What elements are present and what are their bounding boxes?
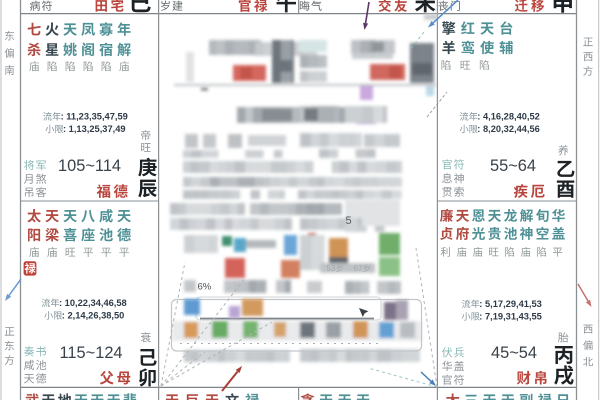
- svg-text:: 11,23,35,47,59: : 11,23,35,47,59: [61, 112, 128, 122]
- svg-text:5: 5: [346, 215, 352, 227]
- svg-text:67: 67: [354, 264, 363, 273]
- svg-text:: 4,16,28,40,52: : 4,16,28,40,52: [477, 112, 540, 122]
- svg-text:45~54: 45~54: [491, 344, 537, 362]
- svg-text:: 1,13,25,37,49: : 1,13,25,37,49: [63, 124, 126, 134]
- svg-text:53: 53: [327, 264, 336, 273]
- svg-text:105~114: 105~114: [58, 157, 121, 175]
- svg-text:: 10,22,34,46,58: : 10,22,34,46,58: [59, 298, 127, 308]
- svg-text:: 2,14,26,38,50: : 2,14,26,38,50: [62, 311, 125, 321]
- svg-text:: 5,17,29,41,53: : 5,17,29,41,53: [479, 299, 542, 309]
- svg-text:55~64: 55~64: [490, 157, 536, 175]
- svg-text:6%: 6%: [198, 282, 212, 293]
- svg-text:: 8,20,32,44,56: : 8,20,32,44,56: [477, 124, 540, 134]
- svg-text:115~124: 115~124: [60, 344, 123, 362]
- svg-text:: 7,19,31,43,55: : 7,19,31,43,55: [479, 312, 542, 322]
